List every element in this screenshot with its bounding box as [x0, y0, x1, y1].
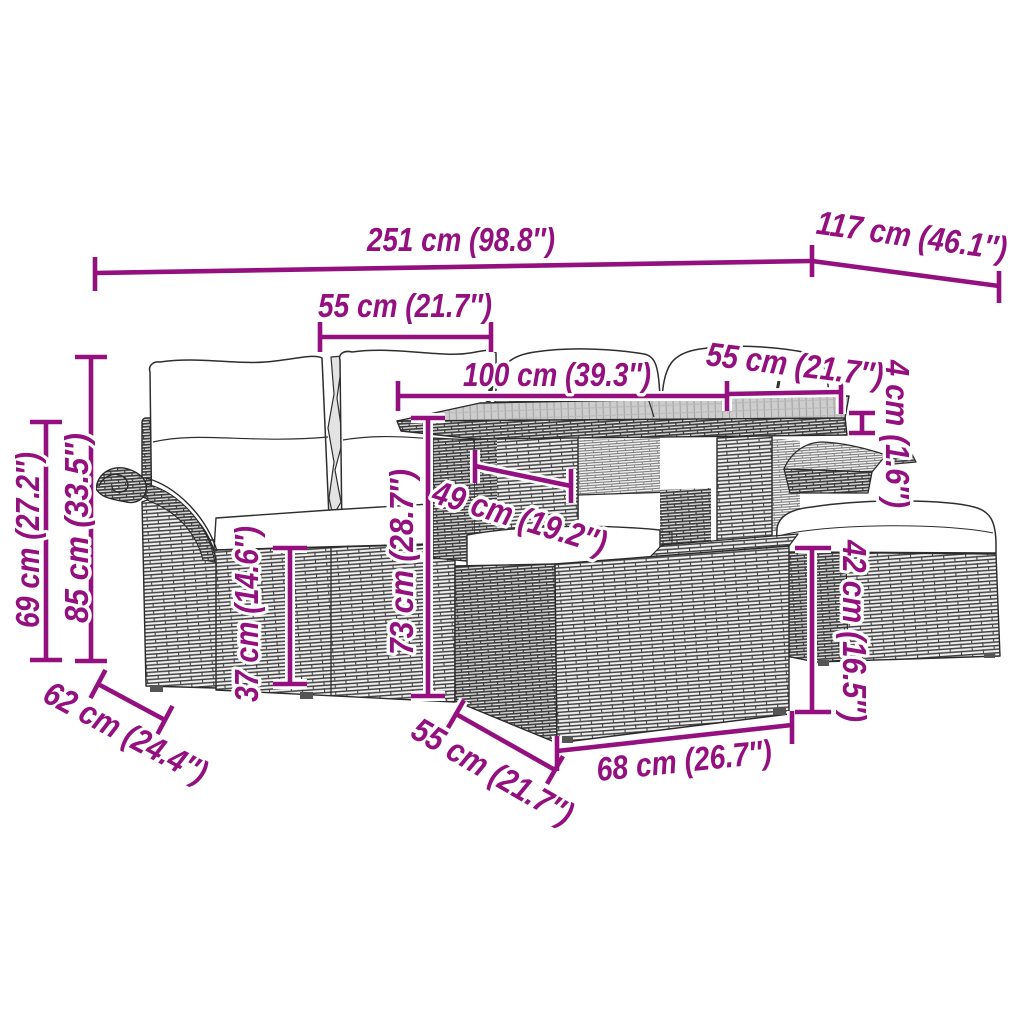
svg-text:37 cm (14.6″): 37 cm (14.6″) [229, 526, 266, 702]
svg-text:42 cm (16.5″): 42 cm (16.5″) [835, 539, 872, 722]
svg-text:251 cm (98.8″): 251 cm (98.8″) [366, 222, 555, 259]
svg-text:85 cm (33.5″): 85 cm (33.5″) [59, 433, 96, 623]
svg-text:100 cm (39.3″): 100 cm (39.3″) [463, 357, 651, 394]
svg-text:73 cm (28.7″): 73 cm (28.7″) [384, 469, 421, 655]
svg-text:69 cm (27.2″): 69 cm (27.2″) [10, 452, 47, 628]
svg-text:4 cm (1.6″): 4 cm (1.6″) [878, 359, 915, 508]
svg-text:55 cm (21.7″): 55 cm (21.7″) [318, 288, 492, 325]
